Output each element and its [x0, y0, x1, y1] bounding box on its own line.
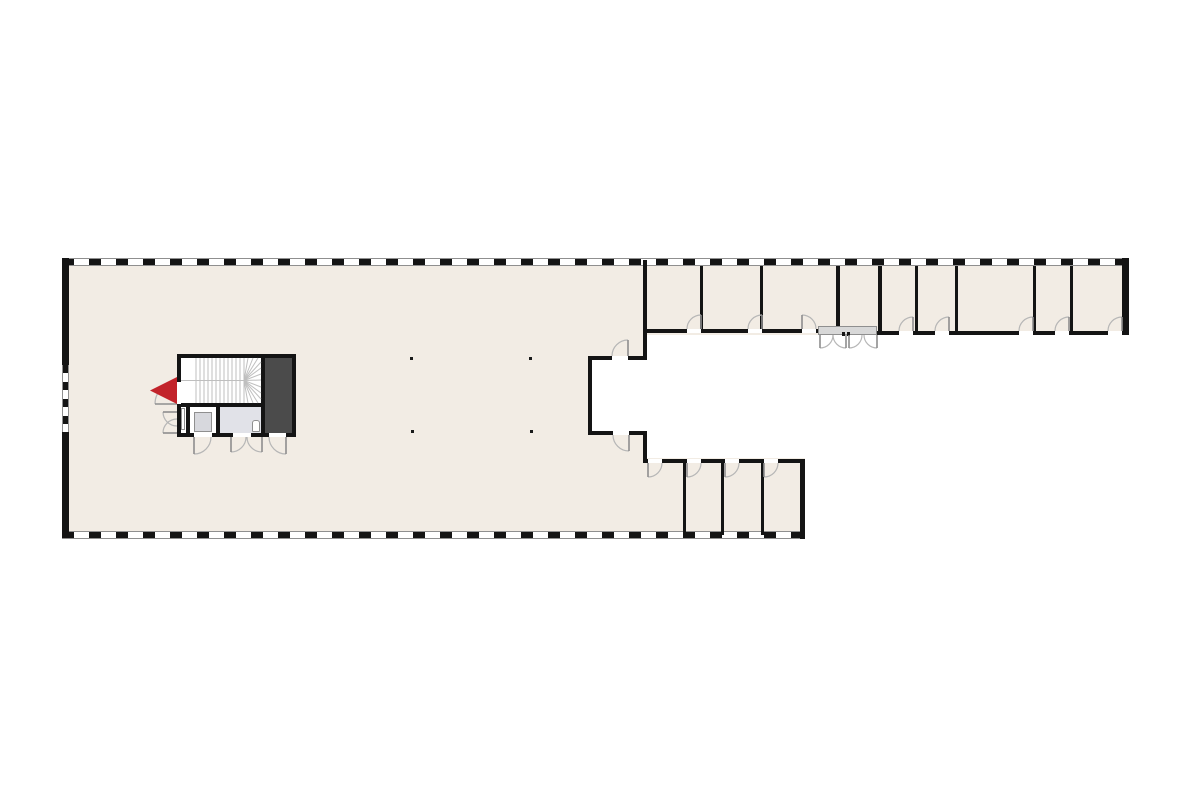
left-wall-lower — [62, 432, 69, 538]
toilet-fixture — [252, 420, 260, 432]
door-top-room-2 — [748, 315, 762, 329]
top-wing-partition-6 — [955, 266, 958, 335]
top-wing-bottom-wall-west — [645, 329, 818, 333]
top-wing-partition-5 — [915, 266, 918, 335]
left-facade-window-band — [62, 365, 69, 432]
gap-top-room-6 — [1019, 331, 1033, 335]
door-bottom-room-3 — [725, 463, 739, 477]
column-2 — [529, 357, 532, 360]
entrance-door-leaf-3 — [849, 335, 862, 348]
top-wing-partition-3 — [836, 266, 840, 330]
floor-plan-canvas — [0, 0, 1200, 800]
gap-top-room-7 — [1055, 331, 1069, 335]
door-top-room-5 — [935, 317, 949, 331]
bottom-facade-window-wall — [62, 531, 805, 539]
hall-right-wall — [643, 260, 647, 360]
bottom-wing-right-wall — [800, 459, 805, 539]
duct-fixture — [181, 408, 185, 430]
door-core-strip-b — [163, 419, 177, 433]
top-facade-window-wall — [62, 258, 1128, 266]
door-bottom-room-4 — [764, 463, 778, 477]
entry-arrow — [148, 375, 180, 407]
entrance-door-leaf-2 — [833, 335, 846, 348]
bottom-wing-partition-1 — [683, 461, 686, 535]
door-core-shaft — [269, 437, 286, 454]
gap-top-room-8 — [1108, 331, 1122, 335]
entrance-door-leaf-1 — [820, 335, 833, 348]
door-bottom-room-2 — [687, 463, 701, 477]
entrance-door-leaf-4 — [864, 335, 877, 348]
bottom-wing-top-wall — [643, 459, 805, 463]
door-core-room-2b — [247, 437, 262, 452]
door-top-room-1 — [687, 315, 701, 329]
door-bottom-room-1 — [648, 463, 662, 477]
gap-top-room-3 — [802, 329, 816, 333]
column-3 — [411, 430, 414, 433]
core-shaft-wall — [261, 354, 265, 437]
shaft-fill — [265, 358, 292, 433]
column-1 — [410, 357, 413, 360]
left-wall-upper — [62, 258, 69, 365]
column-4 — [530, 430, 533, 433]
notch-left-wall — [588, 356, 592, 435]
door-notch-bottom — [613, 435, 629, 451]
door-top-room-7 — [1055, 317, 1069, 331]
core-room-partition-1 — [186, 403, 190, 437]
door-top-room-6 — [1019, 317, 1033, 331]
right-wall — [1122, 258, 1129, 335]
door-top-room-4 — [899, 317, 913, 331]
door-top-room-8 — [1108, 317, 1122, 331]
gap-notch-top-door — [612, 356, 628, 360]
door-top-room-3 — [802, 315, 816, 329]
top-wing-partition-8 — [1070, 266, 1073, 335]
door-core-room-2a — [231, 437, 246, 452]
door-core-room-1 — [194, 437, 211, 454]
staircase — [181, 358, 261, 403]
door-notch-top — [612, 340, 628, 356]
core-mid-wall — [177, 403, 265, 407]
entry-arrow-icon — [150, 377, 177, 404]
gap-top-room-4 — [899, 331, 913, 335]
cabinet-fixture — [194, 412, 212, 432]
notch-courtyard — [590, 358, 647, 433]
gap-top-room-5 — [935, 331, 949, 335]
gap-top-room-2 — [748, 329, 762, 333]
core-right-wall — [292, 354, 296, 437]
bottom-wing-partition-2 — [721, 461, 724, 535]
top-wing-partition-4 — [878, 266, 882, 335]
core-room-partition-2 — [216, 403, 220, 437]
gap-top-room-1 — [687, 329, 701, 333]
